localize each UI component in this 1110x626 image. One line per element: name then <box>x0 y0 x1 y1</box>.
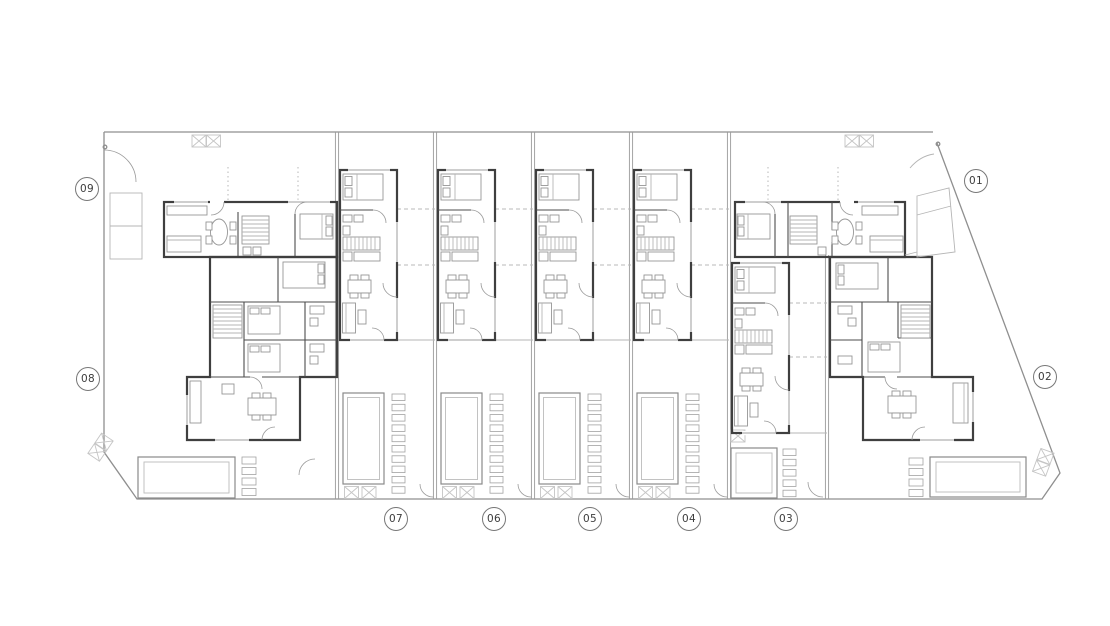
unit-03-pool <box>731 430 796 498</box>
unit-02-house <box>830 257 975 442</box>
unit-09-label: 09 <box>75 177 99 201</box>
unit-02-pool <box>909 448 1054 497</box>
unit-06-pool <box>441 393 503 499</box>
unit-09-house <box>164 200 337 257</box>
unit-03-house <box>732 261 791 435</box>
party-walls <box>335 132 828 499</box>
unit-07-label: 07 <box>384 507 408 531</box>
unit-01-house <box>735 200 905 257</box>
floor-plan-page: 01 02 03 04 05 06 07 08 09 <box>0 0 1110 626</box>
unit-04-label: 04 <box>677 507 701 531</box>
unit-03-label: 03 <box>774 507 798 531</box>
unit-08-house <box>185 257 337 442</box>
street-edge-vent-boxes <box>192 135 874 147</box>
planter-wedge <box>905 188 955 257</box>
unit-01-label: 01 <box>964 169 988 193</box>
unit-04-house <box>634 168 693 342</box>
unit-05-house <box>536 168 595 342</box>
unit-07-pool <box>343 393 405 499</box>
unit-07-house <box>340 168 399 342</box>
floor-plan-drawing <box>0 0 1110 626</box>
unit-08-label: 08 <box>76 367 100 391</box>
unit-05-label: 05 <box>578 507 602 531</box>
unit-05-pool <box>539 393 601 499</box>
unit-06-label: 06 <box>482 507 506 531</box>
unit-06-house <box>438 168 497 342</box>
unit-02-label: 02 <box>1033 365 1057 389</box>
unit-04-pool <box>637 393 699 499</box>
